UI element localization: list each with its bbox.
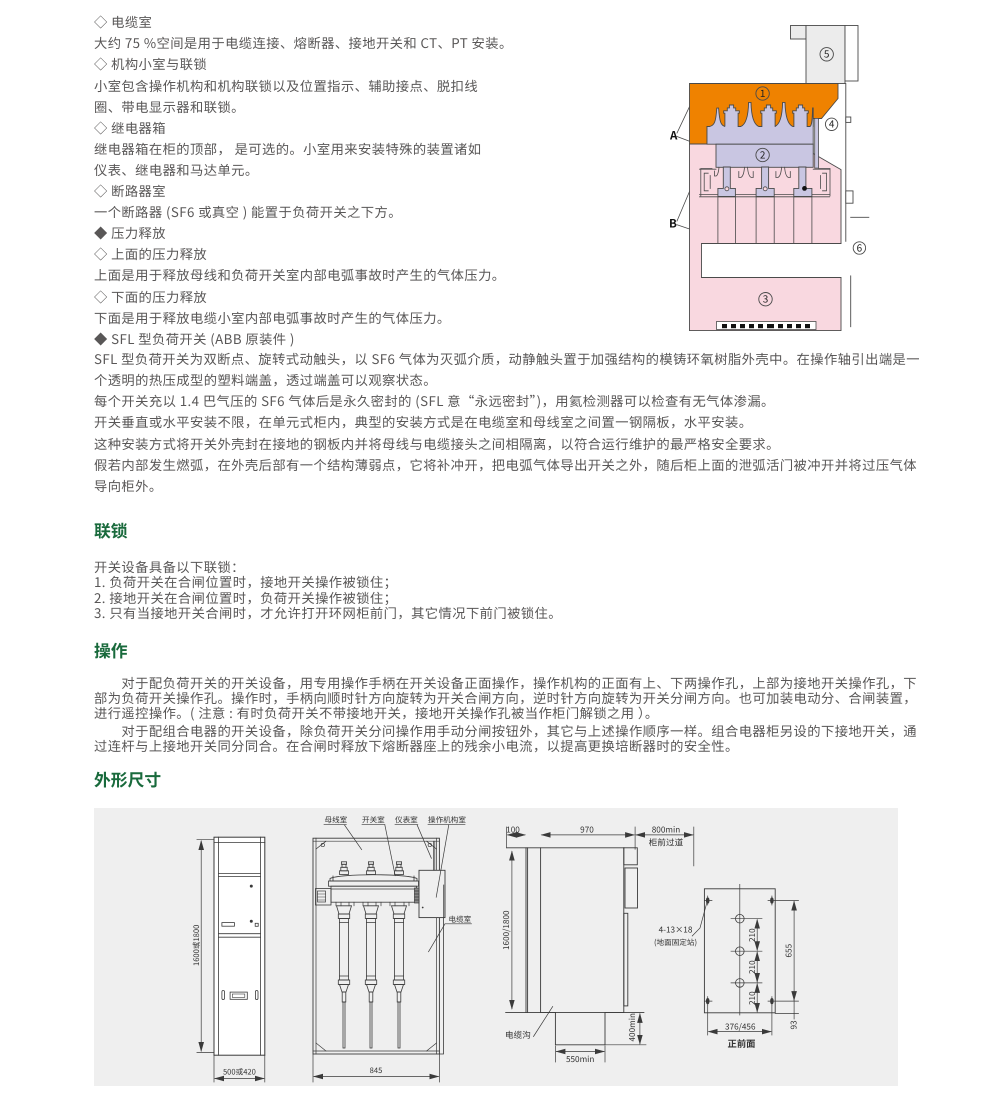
- svg-text:93: 93: [787, 1020, 799, 1030]
- svg-text:970: 970: [580, 824, 594, 836]
- svg-text:1600或1800: 1600或1800: [191, 925, 202, 966]
- svg-text:210: 210: [746, 960, 758, 974]
- svg-text:2: 2: [760, 146, 766, 161]
- svg-text:1600/1800: 1600/1800: [500, 910, 512, 950]
- svg-text:6: 6: [857, 239, 863, 254]
- svg-text:操作机构室: 操作机构室: [428, 815, 466, 826]
- svg-text:电缆沟: 电缆沟: [505, 1029, 531, 1041]
- svg-text:仪表室: 仪表室: [395, 815, 418, 826]
- svg-text:655: 655: [783, 943, 795, 957]
- svg-text:5: 5: [824, 46, 830, 61]
- svg-text:4: 4: [829, 116, 835, 131]
- svg-text:100: 100: [506, 824, 520, 836]
- svg-text:柜前过道: 柜前过道: [649, 837, 684, 849]
- svg-text:800min: 800min: [652, 824, 680, 836]
- svg-text:4-13×18: 4-13×18: [659, 923, 693, 935]
- svg-text:正前面: 正前面: [728, 1036, 756, 1050]
- svg-text:400min: 400min: [626, 1013, 638, 1041]
- svg-text:210: 210: [746, 991, 758, 1005]
- svg-text:1: 1: [760, 85, 766, 100]
- svg-text:550min: 550min: [566, 1053, 594, 1065]
- svg-text:500或420: 500或420: [223, 1067, 256, 1078]
- svg-text:B: B: [669, 216, 677, 232]
- svg-text:母线室: 母线室: [325, 815, 348, 826]
- svg-text:845: 845: [370, 1065, 383, 1076]
- svg-text:电缆室: 电缆室: [449, 914, 472, 925]
- svg-text:开关室: 开关室: [362, 815, 385, 826]
- svg-text:(地面固定站): (地面固定站): [654, 937, 697, 948]
- svg-text:A: A: [669, 128, 678, 144]
- svg-text:376/456: 376/456: [725, 1021, 756, 1033]
- svg-text:210: 210: [746, 928, 758, 942]
- svg-text:3: 3: [763, 291, 769, 306]
